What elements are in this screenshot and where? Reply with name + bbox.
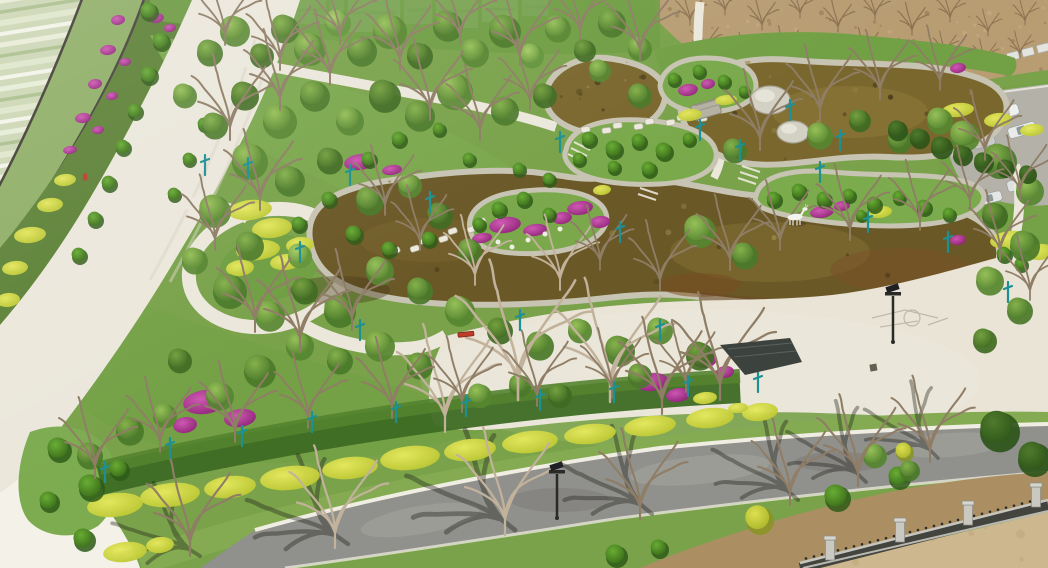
screenshot-root: Oblique aerial drone photo of a newly bu…: [0, 0, 1048, 568]
sun-haze-overlay: [0, 0, 1048, 568]
aerial-park-photo: Oblique aerial drone photo of a newly bu…: [0, 0, 1048, 568]
